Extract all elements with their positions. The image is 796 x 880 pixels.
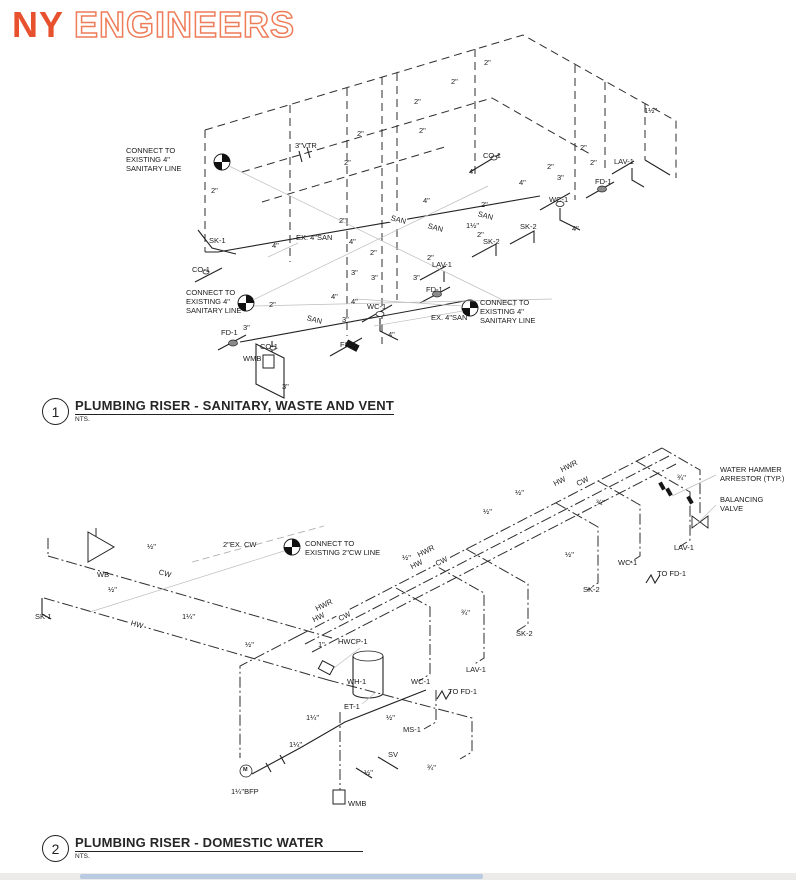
diagram2-title: PLUMBING RISER - DOMESTIC WATER	[75, 835, 363, 852]
diagram1-titleblock: 1 PLUMBING RISER - SANITARY, WASTE AND V…	[42, 398, 394, 425]
page: NYENGINEERS	[0, 0, 796, 880]
footer-strip	[0, 873, 796, 880]
diagram1-number-circle: 1	[42, 398, 69, 425]
horizontal-scrollbar[interactable]	[80, 874, 483, 879]
riser-line-art	[0, 0, 796, 880]
diagram2-number-circle: 2	[42, 835, 69, 862]
diagram2-titleblock: 2 PLUMBING RISER - DOMESTIC WATER NTS.	[42, 835, 363, 862]
diagram1-title: PLUMBING RISER - SANITARY, WASTE AND VEN…	[75, 398, 394, 415]
diagram1-scale: NTS.	[75, 416, 394, 423]
diagram2-scale: NTS.	[75, 853, 363, 860]
